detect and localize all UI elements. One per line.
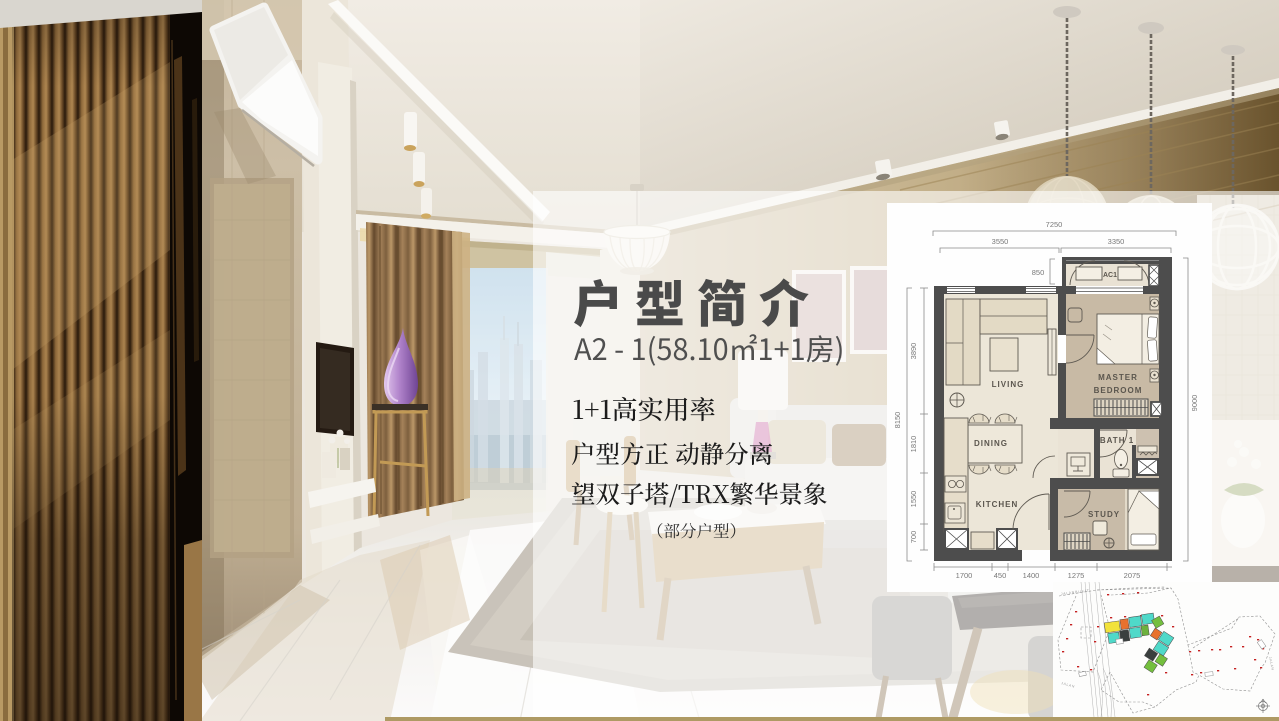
svg-text:KITCHEN: KITCHEN (976, 500, 1019, 509)
svg-text:1700: 1700 (956, 571, 973, 580)
svg-text:7250: 7250 (1046, 220, 1063, 229)
svg-text:BATH 1: BATH 1 (1100, 436, 1134, 445)
svg-text:1810: 1810 (909, 436, 918, 453)
svg-text:1275: 1275 (1068, 571, 1085, 580)
svg-text:BEDROOM: BEDROOM (1094, 386, 1143, 395)
svg-text:8150: 8150 (893, 412, 902, 429)
svg-text:1550: 1550 (909, 491, 918, 508)
svg-text:LIVING: LIVING (992, 380, 1025, 389)
svg-text:STUDY: STUDY (1088, 510, 1120, 519)
svg-text:700: 700 (909, 531, 918, 544)
svg-text:3350: 3350 (1108, 237, 1125, 246)
svg-text:DINING: DINING (974, 439, 1008, 448)
svg-text:9000: 9000 (1190, 395, 1199, 412)
svg-text:1400: 1400 (1023, 571, 1040, 580)
svg-text:MASTER: MASTER (1098, 373, 1138, 382)
svg-text:2075: 2075 (1124, 571, 1141, 580)
svg-text:850: 850 (1032, 268, 1045, 277)
svg-text:450: 450 (994, 571, 1007, 580)
svg-text:3550: 3550 (992, 237, 1009, 246)
svg-text:AC1: AC1 (1103, 272, 1117, 279)
svg-text:3890: 3890 (909, 343, 918, 360)
